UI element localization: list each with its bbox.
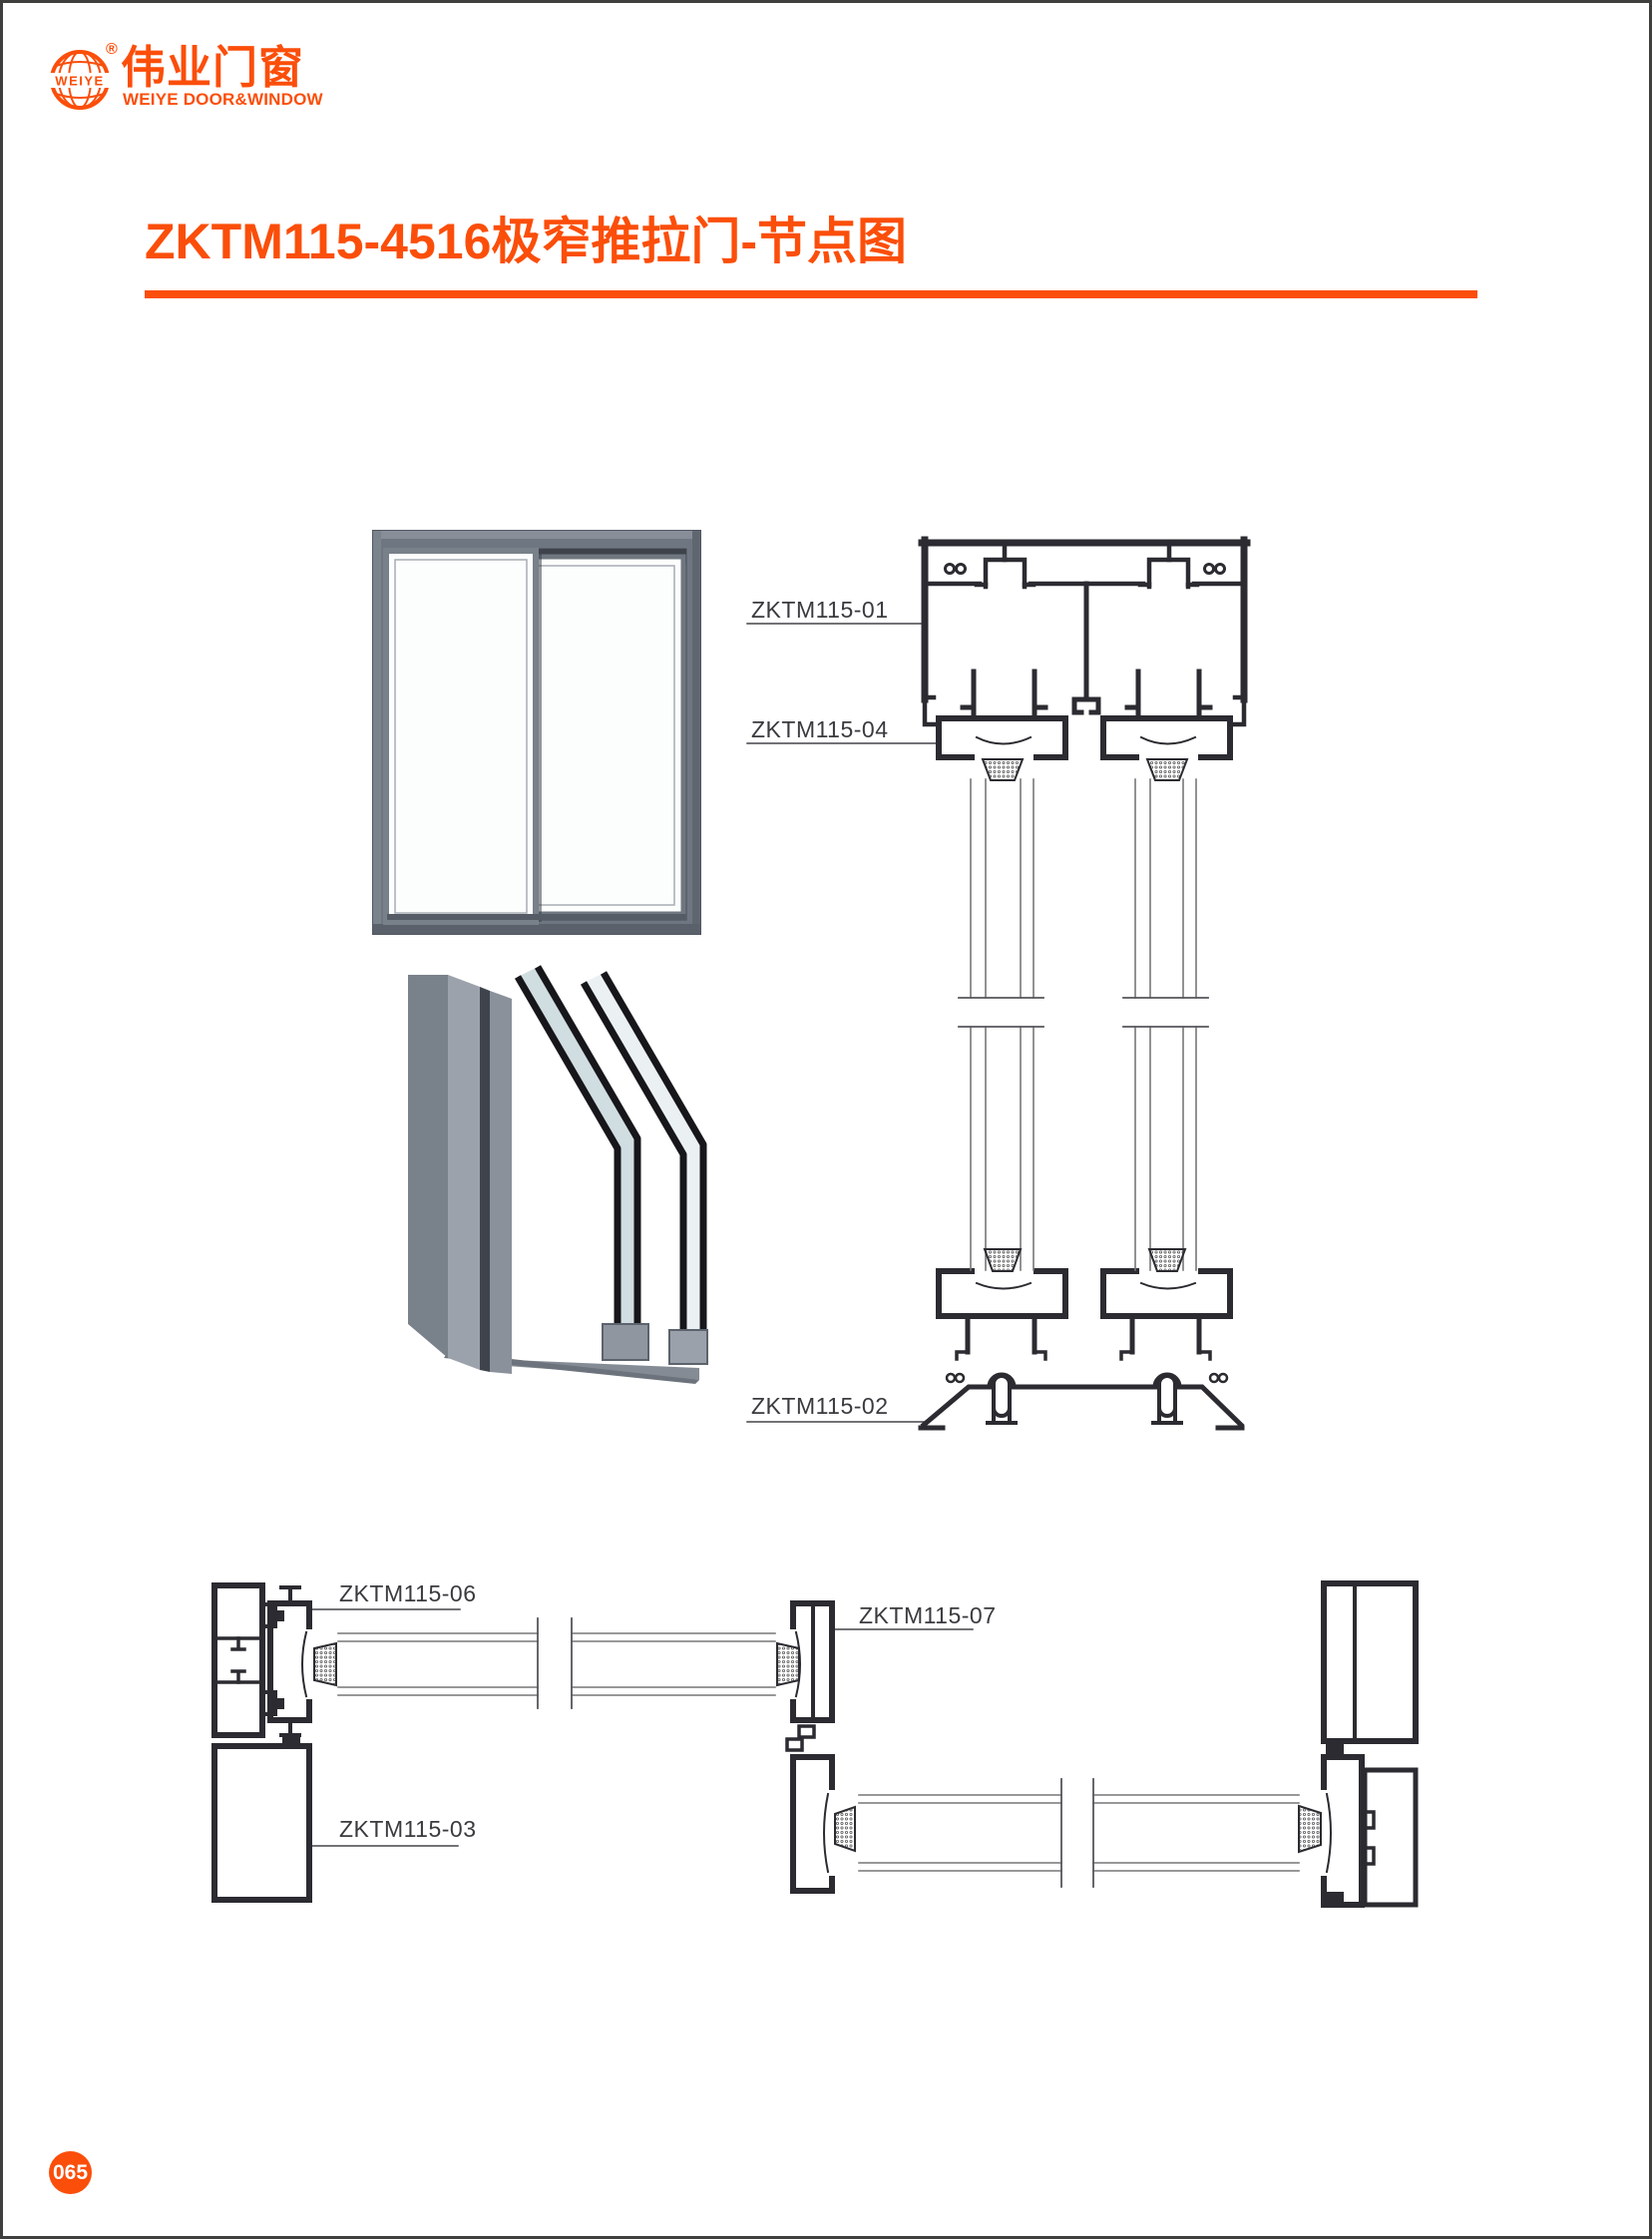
page-number-badge: 065: [49, 2151, 92, 2194]
catalog-page: WEIYE ® 伟业门窗 WEIYE DOOR&WINDOW ZKTM115-4…: [0, 0, 1652, 2239]
globe-icon: WEIYE: [49, 49, 111, 111]
label-zktm115-02: ZKTM115-02: [751, 1394, 889, 1419]
label-zktm115-01: ZKTM115-01: [751, 598, 889, 623]
sliding-door-render: [367, 527, 706, 941]
globe-text: WEIYE: [55, 74, 104, 89]
page-number: 065: [53, 2161, 88, 2185]
logo-english-name: WEIYE DOOR&WINDOW: [123, 91, 323, 108]
horizontal-section-drawing: [203, 1574, 1430, 1914]
label-zktm115-07: ZKTM115-07: [859, 1603, 997, 1628]
label-zktm115-06: ZKTM115-06: [339, 1581, 477, 1606]
page-title: ZKTM115-4516极窄推拉门-节点图: [145, 215, 907, 269]
logo-chinese-name: 伟业门窗: [121, 45, 304, 90]
registered-mark-icon: ®: [106, 41, 118, 59]
title-underline: [145, 290, 1477, 298]
label-zktm115-04: ZKTM115-04: [751, 717, 889, 742]
vertical-section-drawing: [741, 532, 1260, 1445]
label-zktm115-03: ZKTM115-03: [339, 1817, 477, 1842]
profile-corner-render: [400, 957, 709, 1386]
